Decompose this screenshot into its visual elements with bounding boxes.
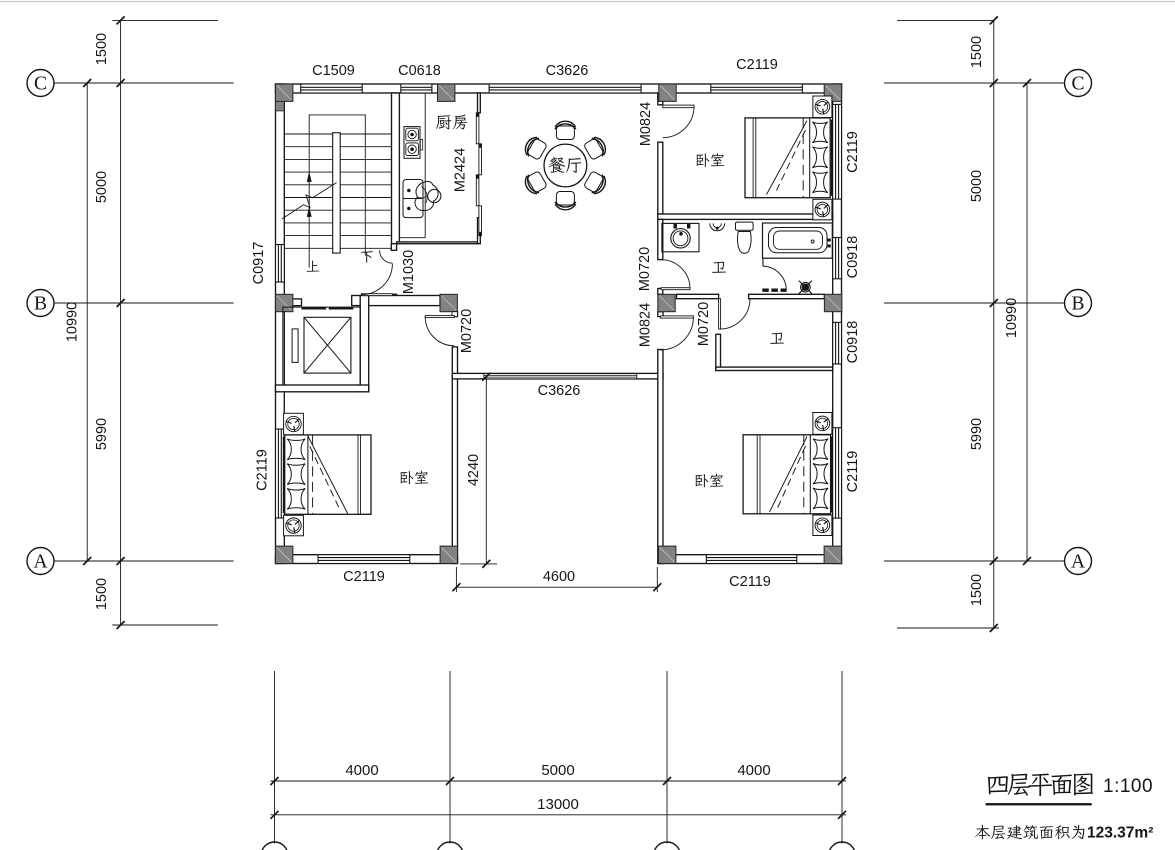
svg-text:C1509: C1509 [312, 63, 355, 79]
svg-text:4600: 4600 [543, 569, 575, 585]
svg-text:C0918: C0918 [845, 321, 861, 364]
svg-text:M1030: M1030 [401, 250, 417, 294]
svg-text:1:100: 1:100 [1103, 776, 1153, 797]
svg-text:A: A [33, 552, 47, 573]
svg-text:M2424: M2424 [453, 148, 469, 192]
svg-text:1500: 1500 [94, 578, 110, 610]
svg-text:C2119: C2119 [736, 57, 778, 73]
svg-text:C3626: C3626 [538, 383, 581, 399]
svg-text:C3626: C3626 [546, 63, 589, 79]
svg-text:4240: 4240 [466, 454, 482, 486]
svg-text:1500: 1500 [969, 36, 985, 68]
svg-text:C2119: C2119 [845, 131, 861, 173]
svg-text:1500: 1500 [969, 574, 985, 606]
svg-text:M0824: M0824 [638, 303, 654, 347]
svg-text:B: B [1071, 294, 1084, 315]
svg-text:M0720: M0720 [637, 247, 653, 291]
svg-text:4000: 4000 [345, 762, 378, 779]
svg-text:10990: 10990 [65, 302, 81, 342]
svg-text:5000: 5000 [969, 170, 985, 202]
svg-text:M0720: M0720 [696, 302, 712, 346]
svg-text:13000: 13000 [537, 796, 579, 813]
svg-text:5000: 5000 [541, 762, 574, 779]
svg-text:123.37m²: 123.37m² [1087, 825, 1153, 842]
svg-text:C2119: C2119 [845, 451, 861, 493]
svg-text:10990: 10990 [1004, 298, 1020, 338]
svg-text:1500: 1500 [94, 33, 110, 65]
svg-text:C2119: C2119 [255, 449, 271, 491]
svg-text:C0918: C0918 [845, 236, 861, 279]
svg-text:C2119: C2119 [729, 574, 771, 590]
svg-text:5000: 5000 [94, 171, 110, 203]
svg-text:C: C [34, 74, 47, 95]
svg-text:M0824: M0824 [638, 102, 654, 146]
svg-text:C: C [1071, 74, 1084, 95]
svg-text:C2119: C2119 [343, 569, 385, 585]
svg-text:5990: 5990 [969, 418, 985, 450]
svg-text:C0618: C0618 [398, 63, 441, 79]
svg-text:5990: 5990 [94, 418, 110, 450]
svg-text:C0917: C0917 [251, 242, 267, 285]
svg-text:B: B [34, 294, 47, 315]
svg-text:M0720: M0720 [459, 309, 475, 353]
svg-text:4000: 4000 [737, 762, 770, 779]
svg-text:A: A [1071, 552, 1085, 573]
